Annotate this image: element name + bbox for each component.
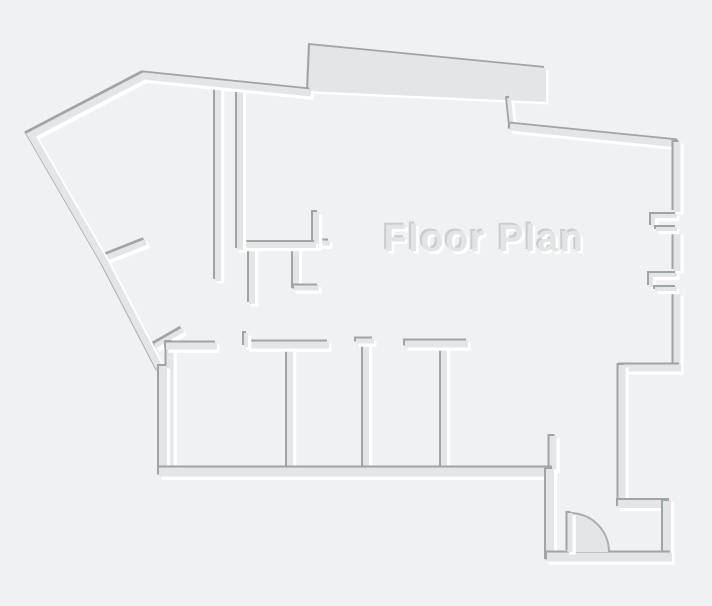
outer-wall-right-upper bbox=[675, 140, 680, 215]
floor-plan-title: Floor Plan bbox=[384, 218, 585, 260]
hall-wall-b bbox=[238, 87, 243, 253]
vestibule-left-wall bbox=[548, 467, 553, 564]
hall-wall-a bbox=[216, 85, 221, 284]
room-divider-1 bbox=[288, 340, 293, 473]
floor-plan-canvas: Floor PlanFloor PlanFloor Plan bbox=[0, 0, 712, 606]
room-divider-2 bbox=[364, 338, 369, 473]
outer-wall-right-lower bbox=[675, 291, 680, 374]
outer-wall-left bbox=[29, 74, 314, 374]
closet-wall-f-foot bbox=[292, 286, 322, 291]
divider2-cap bbox=[354, 339, 377, 344]
kitchen-wall-horizontal bbox=[235, 243, 319, 248]
vestibule-bottom-wall bbox=[545, 555, 675, 560]
floor-plan-drawing: Floor PlanFloor PlanFloor Plan bbox=[0, 0, 712, 606]
closet-wall-e bbox=[250, 245, 255, 307]
door-leaf bbox=[568, 511, 573, 555]
outer-wall-right-step bbox=[620, 363, 625, 510]
outer-wall-right-mid bbox=[675, 230, 680, 274]
window1-jamb-lower bbox=[654, 227, 680, 232]
room2-top-wall bbox=[245, 343, 332, 348]
top-thick-band bbox=[306, 43, 549, 105]
outer-wall-left-vertical bbox=[161, 364, 166, 475]
window2-jamb-lower bbox=[653, 287, 680, 292]
room-divider-3 bbox=[442, 344, 447, 473]
outer-wall-top-right bbox=[508, 125, 682, 147]
room3-top-wall bbox=[403, 342, 471, 347]
outer-wall-bottom bbox=[157, 470, 557, 475]
room2-top-jog bbox=[244, 331, 249, 350]
room1-top-wall bbox=[164, 344, 220, 349]
